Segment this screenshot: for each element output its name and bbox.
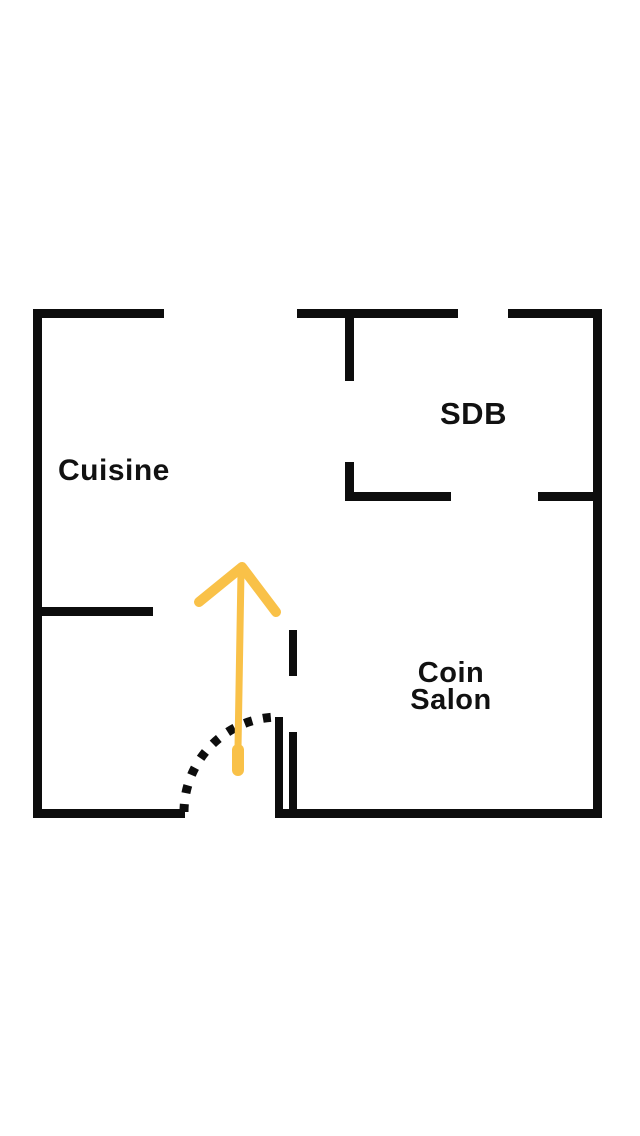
room-label-coin-salon-line2: Salon bbox=[410, 684, 491, 716]
floor-plan-drawing bbox=[0, 0, 640, 1136]
room-label-coin-salon: Coin Salon bbox=[395, 660, 507, 714]
wall-top-a bbox=[33, 309, 164, 318]
wall-entry-dash bbox=[289, 630, 297, 676]
wall-entry-jamb bbox=[275, 717, 283, 814]
room-label-sdb: SDB bbox=[440, 396, 507, 432]
wall-top-c bbox=[508, 309, 602, 318]
wall-left bbox=[33, 309, 42, 818]
wall-sdb-bottom-left bbox=[345, 492, 451, 501]
up-arrow-icon bbox=[199, 567, 276, 770]
wall-right bbox=[593, 309, 602, 818]
wall-cuisine-bottom bbox=[40, 607, 153, 616]
wall-top-b bbox=[297, 309, 458, 318]
wall-bottom-right bbox=[275, 809, 602, 818]
arrow-shaft bbox=[238, 572, 241, 748]
wall-bottom-left bbox=[33, 809, 185, 818]
wall-sdb-bottom-right bbox=[538, 492, 598, 501]
room-label-cuisine: Cuisine bbox=[58, 454, 170, 488]
walls bbox=[33, 309, 602, 818]
floor-plan: Cuisine SDB Coin Salon bbox=[0, 0, 640, 1136]
wall-entry-inner bbox=[289, 732, 297, 809]
door-swing-arc bbox=[184, 717, 279, 812]
wall-sdb-top-stub bbox=[345, 313, 354, 381]
